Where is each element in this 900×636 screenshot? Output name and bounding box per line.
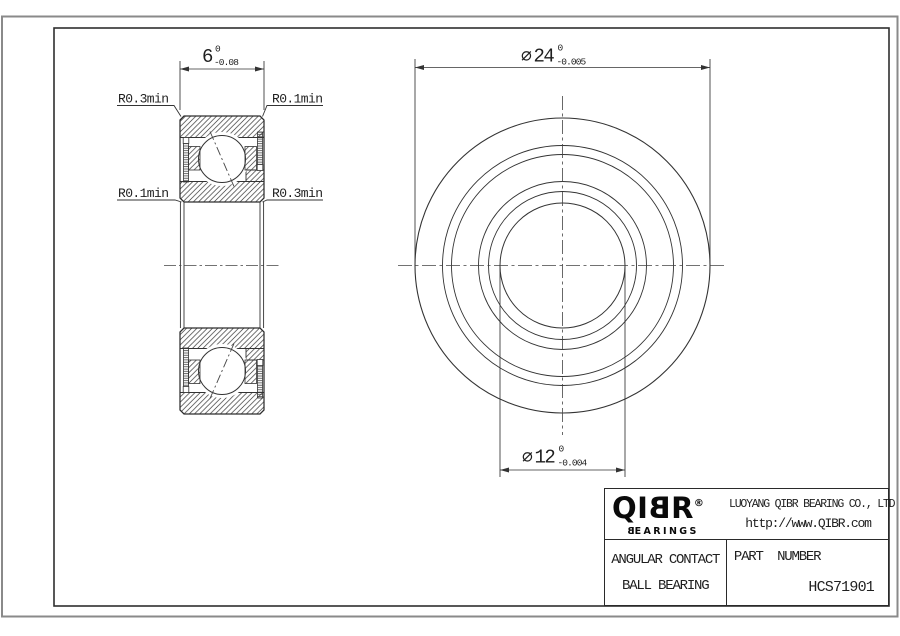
product-type-cell: ANGULAR CONTACT BALL BEARING <box>605 540 727 605</box>
bearing-section-lower <box>180 328 264 414</box>
radius-label-bottom-left: R0.1min <box>118 186 168 201</box>
bearing-section-upper <box>180 116 264 202</box>
outer-dim-tol-upper: 0 <box>558 43 564 54</box>
radius-label-bottom-right: R0.3min <box>272 186 322 201</box>
arrowhead <box>415 65 424 70</box>
section-view: 6 0 -0.08 R0.3min R0.1min R0.1min R0.3mi… <box>117 44 323 415</box>
inner-ring-shoulder-hatch <box>246 348 264 361</box>
outer-dim-symbol: ⌀ <box>521 48 532 68</box>
company-website: http://www.QIBR.com <box>729 516 887 532</box>
ring-face-lines <box>180 202 263 328</box>
bore-dim-symbol: ⌀ <box>522 449 533 469</box>
front-view-centerlines <box>398 96 727 435</box>
tagline-mirrored-b: B <box>625 526 635 537</box>
radius-label-top-right: R0.1min <box>272 92 322 107</box>
bore-dim-tol-lower: -0.004 <box>558 458 588 469</box>
tagline-rest: EARINGS <box>635 526 699 537</box>
product-type-line1: ANGULAR CONTACT <box>611 547 719 573</box>
bore-dim-tol-upper: 0 <box>559 444 565 455</box>
arrowhead <box>701 65 710 70</box>
drawing-page: 6 0 -0.08 R0.3min R0.1min R0.1min R0.3mi… <box>0 0 900 636</box>
part-number-cell: PART NUMBER HCS71901 <box>727 540 888 605</box>
outer-dim-value: 24 <box>534 46 555 68</box>
arrowhead <box>255 67 264 72</box>
part-number-value: HCS71901 <box>808 579 874 596</box>
product-type-line2: BALL BEARING <box>622 573 708 599</box>
logo-mirrored-b: B <box>648 494 671 523</box>
arrowhead <box>616 468 625 473</box>
width-dim-value: 6 <box>202 46 213 68</box>
company-info: LUOYANG QIBR BEARING CO., LTD http://www… <box>729 498 887 532</box>
logo-wordmark: QIBR® <box>612 494 727 530</box>
title-block-lower-row: ANGULAR CONTACT BALL BEARING PART NUMBER… <box>605 540 888 605</box>
logo-part1: QI <box>612 491 648 525</box>
outer-dim-tol-lower: -0.005 <box>557 57 587 68</box>
logo-part2: R <box>671 491 694 525</box>
arrowhead <box>500 468 509 473</box>
title-block: QIBR® BEARINGS LUOYANG QIBR BEARING CO.,… <box>604 488 889 606</box>
logo-tagline: BEARINGS <box>625 526 699 537</box>
bore-dim-value: 12 <box>535 447 556 469</box>
inner-ring-shoulder-hatch <box>246 170 264 183</box>
front-view: ⌀ 24 0 -0.005 ⌀ 12 0 -0.004 <box>398 43 727 478</box>
registered-trademark-icon: ® <box>694 489 704 518</box>
title-block-header-row: QIBR® BEARINGS LUOYANG QIBR BEARING CO.,… <box>605 489 888 540</box>
part-number-label: PART NUMBER <box>734 549 820 565</box>
radius-label-top-left: R0.3min <box>118 92 168 107</box>
width-dim-tol-upper: 0 <box>215 44 221 55</box>
arrowhead <box>180 67 189 72</box>
width-dimension <box>180 61 264 110</box>
company-logo: QIBR® BEARINGS <box>612 494 727 536</box>
company-name: LUOYANG QIBR BEARING CO., LTD <box>729 498 887 512</box>
width-dim-tol-lower: -0.08 <box>214 57 239 68</box>
